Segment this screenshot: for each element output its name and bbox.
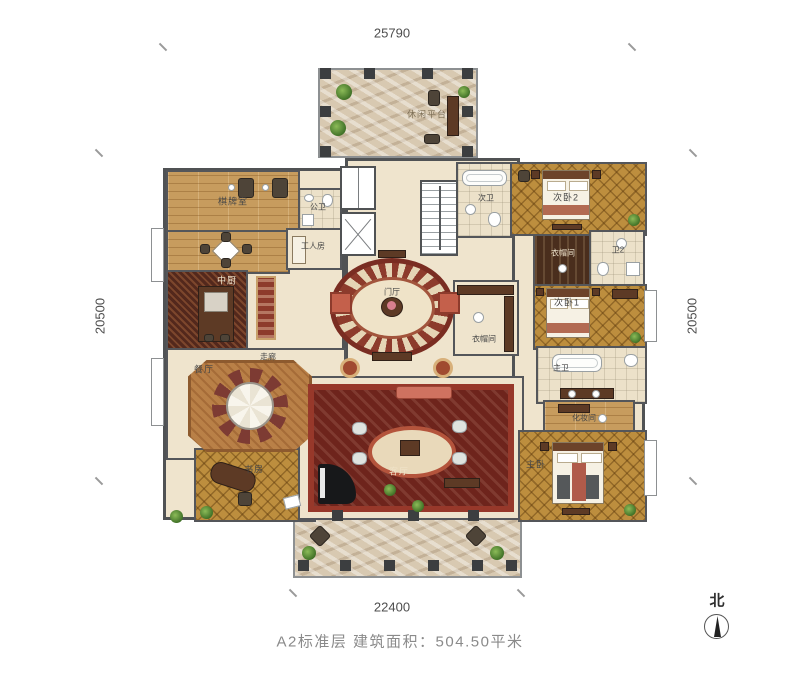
pillar — [332, 510, 343, 521]
pillar — [320, 106, 331, 117]
nightstand-icon — [592, 288, 600, 296]
table-icon — [428, 90, 440, 106]
plant-icon — [630, 332, 641, 343]
plant-icon — [330, 120, 346, 136]
pillow-icon — [547, 181, 566, 191]
dimension-left: 20500 — [93, 298, 108, 334]
accent-rug-icon — [330, 292, 352, 314]
chair-icon — [220, 334, 230, 342]
pillow-icon — [569, 181, 588, 191]
pillar — [320, 146, 331, 157]
bench-icon — [552, 224, 582, 230]
nightstand-icon — [608, 442, 617, 451]
coffee-table-icon — [400, 440, 420, 456]
toilet-icon — [597, 262, 609, 276]
staircase-icon — [420, 180, 458, 256]
sink-icon — [592, 390, 600, 398]
room-label-dressing: 化妆间 — [572, 413, 596, 424]
round-rug-icon — [433, 358, 453, 378]
dimension-tick — [95, 149, 103, 157]
armchair-icon — [452, 452, 467, 465]
plant-icon — [490, 546, 504, 560]
plant-icon — [412, 500, 424, 512]
elevator-shaft-icon — [340, 166, 376, 210]
bench-icon — [562, 508, 590, 515]
chair-icon — [242, 244, 252, 254]
pouf-icon — [473, 312, 484, 323]
flower-icon — [387, 301, 396, 310]
plan-caption: A2标准层 建筑面积：504.50平米 — [277, 631, 524, 652]
bay-window — [644, 290, 657, 342]
dimension-tick — [689, 149, 697, 157]
bathtub-icon — [462, 170, 507, 186]
plant-icon — [458, 86, 470, 98]
room-label-living: 客厅 — [389, 465, 409, 478]
toilet-icon — [488, 212, 501, 227]
pillar — [472, 560, 483, 571]
dimension-tick — [689, 477, 697, 485]
elevator-icon — [340, 212, 376, 256]
wardrobe-icon — [504, 296, 514, 352]
round-rug-icon — [340, 358, 360, 378]
armchair-icon — [452, 420, 467, 433]
bench-icon — [447, 96, 459, 136]
pillar — [462, 146, 473, 157]
room-label-master-bedroom: 主卧 — [526, 458, 546, 471]
side-table-icon — [262, 184, 269, 191]
armchair-icon — [352, 452, 367, 465]
shower-icon — [302, 214, 314, 226]
room-label-cloak-center: 衣帽间 — [472, 334, 496, 345]
nightstand-icon — [592, 170, 601, 179]
pillar — [298, 560, 309, 571]
floorplan-page: 25790 22400 20500 20500 A2标准层 建筑面积：504.5… — [0, 0, 800, 677]
pillar — [340, 560, 351, 571]
console-table-icon — [378, 250, 406, 258]
room-label-cloak2: 衣帽间 — [551, 248, 575, 259]
sink-icon — [568, 390, 576, 398]
room-label-kitchen: 中厨 — [217, 274, 237, 287]
dimension-tick — [628, 43, 636, 51]
dimension-right: 20500 — [685, 298, 700, 334]
wardrobe-icon — [457, 285, 514, 295]
pillar — [462, 106, 473, 117]
room-label-public-bath: 公卫 — [310, 202, 326, 213]
bed-throw — [547, 323, 589, 333]
room-label-staff: 工人房 — [301, 241, 325, 252]
bed-throw — [543, 205, 589, 215]
room-label-bedroom1: 次卧1 — [554, 296, 580, 309]
pillar — [364, 68, 375, 79]
room-label-corridor: 走廊 — [260, 352, 276, 363]
bed-headboard — [543, 171, 589, 179]
cart-icon — [424, 134, 440, 144]
armchair-icon — [352, 422, 367, 435]
pillar — [422, 68, 433, 79]
plant-icon — [336, 84, 352, 100]
room-label-master-bath: 主卫 — [553, 363, 569, 374]
dimension-bottom: 22400 — [374, 600, 410, 615]
side-table-icon — [444, 478, 480, 488]
dimension-tick — [517, 589, 525, 597]
north-label: 北 — [709, 590, 724, 611]
room-label-dining: 餐厅 — [194, 363, 214, 376]
counter-top-icon — [204, 292, 228, 312]
dimension-tick — [159, 43, 167, 51]
dimension-top: 25790 — [374, 26, 410, 41]
recliner-icon — [272, 178, 288, 198]
pouf-icon — [558, 264, 567, 273]
nightstand-icon — [540, 442, 549, 451]
room-label-study: 书房 — [244, 463, 264, 476]
bay-window — [644, 440, 657, 496]
accent-rug-icon — [438, 292, 460, 314]
pillar — [468, 510, 479, 521]
plant-icon — [628, 214, 640, 226]
bed-runner — [572, 463, 586, 501]
chair-icon — [221, 258, 231, 268]
pillar — [506, 560, 517, 571]
sink-icon — [465, 204, 476, 215]
runner-rug-icon — [256, 276, 276, 340]
chair-icon — [204, 334, 214, 342]
shower-icon — [626, 262, 640, 276]
bay-window — [151, 228, 164, 282]
nightstand-icon — [531, 170, 540, 179]
dresser-icon — [612, 289, 638, 299]
stool-icon — [598, 414, 607, 423]
room-label-guest-bath: 次卫 — [478, 193, 494, 204]
bed-headboard — [553, 443, 603, 451]
bed-cover — [586, 475, 599, 499]
dimension-tick — [95, 477, 103, 485]
room-label-bedroom2: 次卧2 — [553, 191, 579, 204]
room-label-foyer: 门厅 — [384, 287, 400, 298]
chair-icon — [221, 232, 231, 242]
sofa-icon — [396, 386, 452, 399]
side-table-icon — [228, 184, 235, 191]
pillar — [320, 68, 331, 79]
room-label-terrace-top: 休闲平台 — [407, 108, 447, 121]
pillow-icon — [557, 453, 578, 463]
room-label-game: 棋牌室 — [218, 195, 248, 208]
bay-window — [151, 358, 164, 426]
console-table-icon — [372, 352, 412, 361]
pillar — [462, 68, 473, 79]
pillar — [384, 560, 395, 571]
room-terrace-bottom — [293, 518, 522, 578]
room-label-bath2: 卫2 — [612, 245, 624, 256]
room-cloak2 — [535, 236, 591, 286]
plant-icon — [170, 510, 183, 523]
plant-icon — [384, 484, 396, 496]
toilet-icon — [624, 354, 638, 367]
dimension-tick — [289, 589, 297, 597]
bed-icon — [552, 442, 604, 504]
plant-icon — [302, 546, 316, 560]
dining-table-icon — [226, 382, 274, 430]
pillow-icon — [581, 453, 602, 463]
plant-icon — [624, 504, 636, 516]
armchair-icon — [518, 170, 530, 182]
pillar — [428, 560, 439, 571]
room-study — [196, 450, 314, 520]
bed-cover — [557, 475, 570, 499]
nightstand-icon — [536, 288, 544, 296]
ottoman-icon — [238, 492, 252, 506]
chair-icon — [200, 244, 210, 254]
plant-icon — [200, 506, 213, 519]
